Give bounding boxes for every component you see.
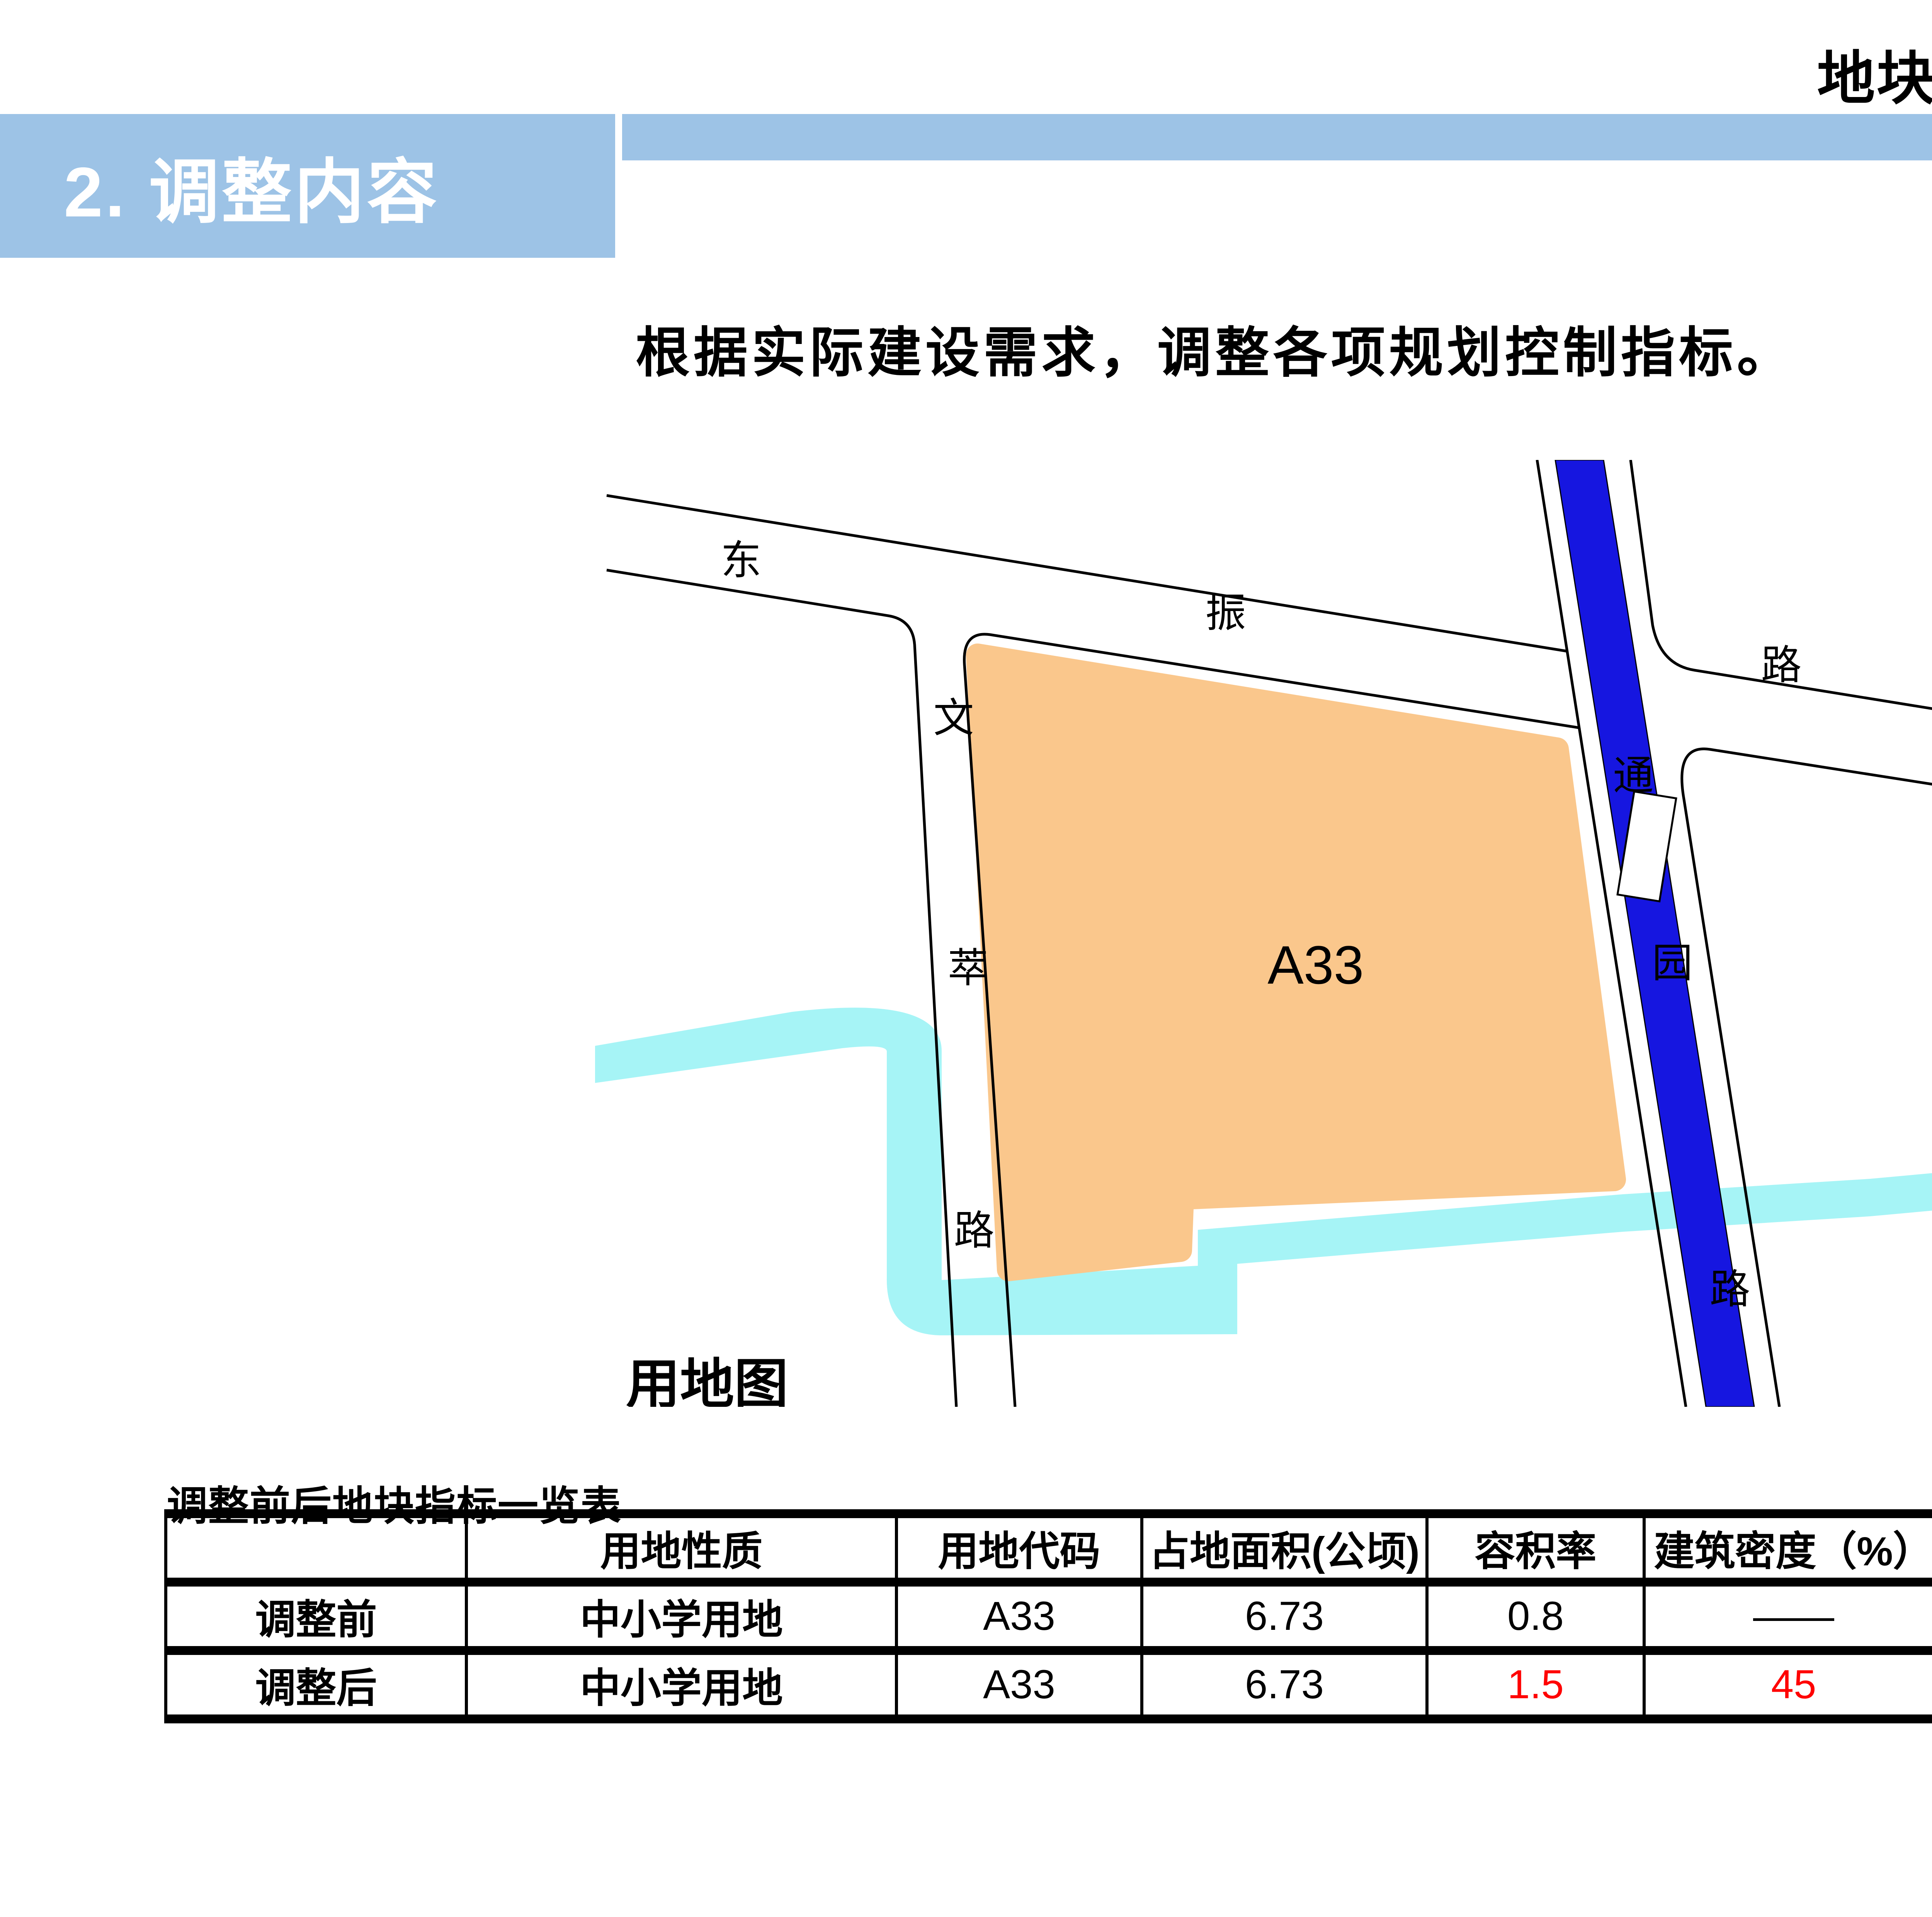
header-cell-density: 建筑密度（%）: [1644, 1514, 1932, 1582]
row-label-after: 调整后: [166, 1651, 466, 1719]
header-cell-far: 容积率: [1427, 1514, 1644, 1582]
cell-before-nature: 中小学用地: [466, 1582, 896, 1651]
road-label-yuan: 园: [1652, 941, 1692, 986]
indicator-table: 用地性质 用地代码 占地面积(公顷) 容积率 建筑密度（%） 建筑限高（米） 绿…: [164, 1509, 1932, 1723]
road-label-lu2: 路: [954, 1208, 994, 1253]
road-label-lu3: 路: [1709, 1267, 1750, 1312]
cell-after-density: 45: [1644, 1651, 1932, 1719]
cell-before-code: A33: [896, 1582, 1142, 1651]
cell-after-area: 6.73: [1142, 1651, 1427, 1719]
table-row-after: 调整后 中小学用地 A33 6.73 1.5 45 50 20: [166, 1651, 1932, 1719]
cell-before-area: 6.73: [1142, 1582, 1427, 1651]
cell-after-code: A33: [896, 1651, 1142, 1719]
slide-title: 地块6：东振路南、通园路西地块: [1817, 32, 1932, 116]
banner-gap: [615, 114, 622, 160]
road-label-cui: 萃: [947, 946, 988, 991]
section-banner: 2. 调整内容: [0, 114, 615, 258]
slide: 地块6：东振路南、通园路西地块 2. 调整内容 根据实际建设需求，调整各项规划控…: [0, 0, 1932, 1917]
table-row-before: 调整前 中小学用地 A33 6.73 0.8 —— —— ——: [166, 1582, 1932, 1651]
road-label-lu1: 路: [1761, 643, 1801, 688]
road-label-dong: 东: [721, 538, 761, 583]
road-label-wen: 文: [933, 696, 974, 741]
cell-before-far: 0.8: [1427, 1582, 1644, 1651]
row-label-before: 调整前: [166, 1582, 466, 1651]
header-cell-area: 占地面积(公顷): [1142, 1514, 1427, 1582]
cell-after-far: 1.5: [1427, 1651, 1644, 1719]
cell-after-nature: 中小学用地: [466, 1651, 896, 1719]
section-label: 2. 调整内容: [0, 135, 439, 237]
road-label-tong: 通: [1613, 753, 1653, 798]
header-cell-nature: 用地性质: [466, 1514, 896, 1582]
body-paragraph: 根据实际建设需求，调整各项规划控制指标。: [636, 309, 1795, 387]
land-use-map: 东 振 路 文 萃 路 通 园 路 A33 用地图: [595, 460, 1932, 1407]
plot-code-label: A33: [1267, 935, 1364, 995]
table-header-row: 用地性质 用地代码 占地面积(公顷) 容积率 建筑密度（%） 建筑限高（米） 绿…: [166, 1514, 1932, 1582]
header-cell-code: 用地代码: [896, 1514, 1142, 1582]
header-cell-blank: [166, 1514, 466, 1582]
road-label-zhen: 振: [1205, 591, 1246, 636]
map-caption: 用地图: [626, 1354, 788, 1407]
cell-before-density: ——: [1644, 1582, 1932, 1651]
